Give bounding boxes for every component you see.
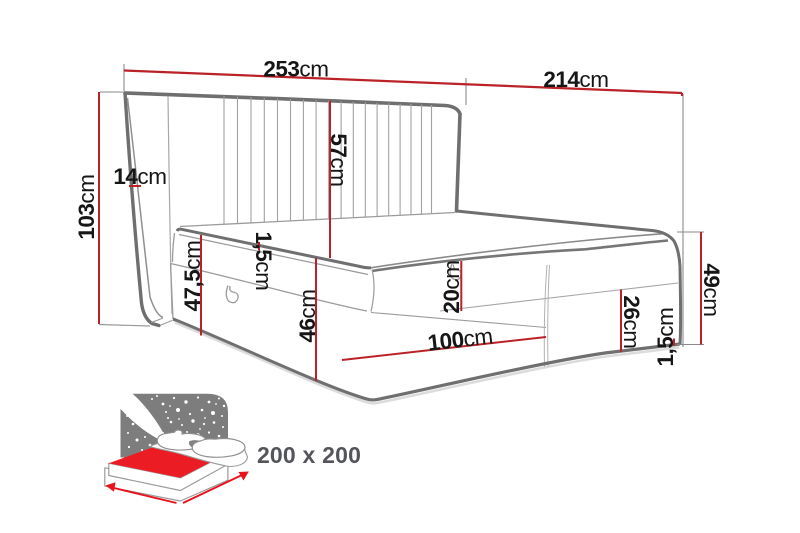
svg-text:100cm: 100cm — [426, 323, 494, 355]
svg-text:253cm: 253cm — [263, 57, 328, 82]
svg-text:20cm: 20cm — [439, 260, 464, 313]
svg-text:1,5cm: 1,5cm — [653, 308, 678, 367]
svg-text:200 x 200: 200 x 200 — [257, 442, 361, 468]
svg-text:1,5cm: 1,5cm — [251, 232, 276, 291]
svg-text:49cm: 49cm — [699, 263, 724, 316]
svg-text:214cm: 214cm — [543, 67, 608, 92]
svg-text:57cm: 57cm — [326, 133, 351, 186]
svg-text:14cm: 14cm — [113, 164, 166, 189]
svg-text:26cm: 26cm — [619, 295, 644, 348]
svg-text:47,5cm: 47,5cm — [180, 241, 205, 312]
svg-text:103cm: 103cm — [74, 174, 99, 239]
svg-text:46cm: 46cm — [295, 289, 320, 342]
